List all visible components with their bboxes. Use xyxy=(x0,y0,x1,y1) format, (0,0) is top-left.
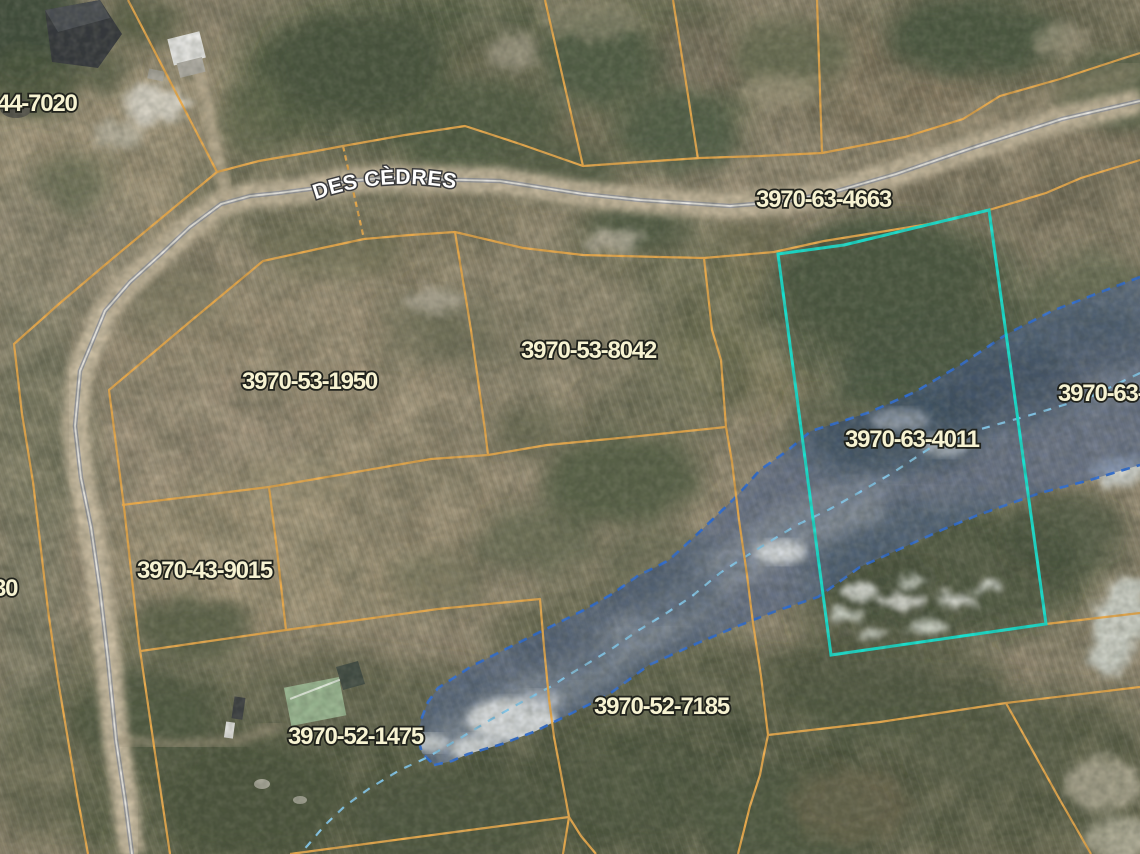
svg-text:3970-52-7185: 3970-52-7185 xyxy=(594,693,730,720)
svg-text:3970-52-1475: 3970-52-1475 xyxy=(288,723,424,750)
svg-text:3970-43-9015: 3970-43-9015 xyxy=(137,557,273,584)
svg-text:3970-63-4663: 3970-63-4663 xyxy=(756,186,892,213)
svg-text:3970-63-4011: 3970-63-4011 xyxy=(845,426,980,453)
svg-text:30: 30 xyxy=(0,575,18,602)
svg-text:3970-63-4: 3970-63-4 xyxy=(1058,380,1140,407)
svg-text:3970-53-1950: 3970-53-1950 xyxy=(242,368,378,395)
svg-text:44-7020: 44-7020 xyxy=(0,90,78,117)
svg-text:3970-53-8042: 3970-53-8042 xyxy=(521,337,657,364)
